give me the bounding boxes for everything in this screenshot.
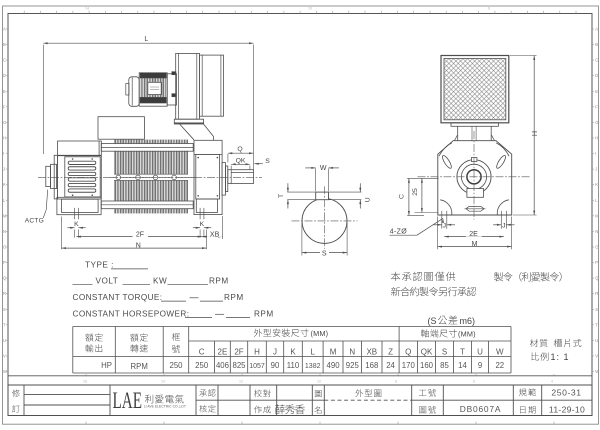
- svg-text:RPM: RPM: [131, 362, 148, 371]
- svg-text:CONSTANT TORQUE:: CONSTANT TORQUE:: [73, 293, 163, 302]
- svg-text:H: H: [595, 136, 598, 141]
- svg-text:N: N: [595, 229, 598, 234]
- svg-text:P: P: [3, 260, 6, 265]
- svg-text:R: R: [595, 291, 598, 296]
- svg-text:QK: QK: [236, 157, 246, 164]
- svg-text:J: J: [273, 348, 277, 357]
- svg-text:Z: Z: [388, 348, 393, 357]
- svg-text:11-29-10: 11-29-10: [549, 405, 585, 415]
- svg-text:V: V: [3, 354, 6, 359]
- svg-text:KW: KW: [153, 277, 167, 286]
- svg-text:925: 925: [346, 361, 360, 370]
- svg-text:90: 90: [271, 361, 280, 370]
- svg-text:LAE: LAE: [113, 388, 143, 413]
- svg-text:M: M: [595, 213, 599, 218]
- svg-text:S: S: [3, 307, 6, 312]
- svg-text:C: C: [199, 348, 205, 357]
- svg-text:B: B: [3, 42, 6, 47]
- svg-text:D: D: [595, 73, 598, 78]
- svg-text:T: T: [278, 194, 285, 198]
- svg-text:W: W: [320, 165, 327, 172]
- svg-text:10: 10: [308, 7, 312, 11]
- svg-text:16: 16: [83, 380, 87, 384]
- svg-text:2E: 2E: [469, 231, 478, 238]
- svg-text:J: J: [443, 223, 446, 230]
- svg-text:T: T: [595, 322, 598, 327]
- svg-text:CONSTANT HORSEPOWER:: CONSTANT HORSEPOWER:: [73, 309, 190, 318]
- svg-text:V: V: [595, 354, 598, 359]
- svg-text:170: 170: [402, 361, 416, 370]
- svg-text:XB: XB: [210, 231, 220, 238]
- svg-text:S: S: [442, 348, 447, 357]
- svg-text:H: H: [3, 136, 6, 141]
- svg-text:LI AVE ELECTRIC CO.,LDT: LI AVE ELECTRIC CO.,LDT: [144, 405, 186, 409]
- svg-text:490: 490: [327, 361, 341, 370]
- svg-text:F: F: [3, 104, 6, 109]
- svg-text:2E: 2E: [218, 348, 228, 357]
- svg-text:I: I: [595, 151, 596, 156]
- svg-text:(MM): (MM): [458, 330, 476, 339]
- svg-text:J: J: [502, 223, 505, 230]
- svg-text:K: K: [3, 182, 6, 187]
- svg-text:12: 12: [239, 380, 243, 384]
- svg-text:L: L: [144, 36, 148, 43]
- svg-text:25: 25: [412, 188, 419, 196]
- svg-text:T: T: [460, 348, 465, 357]
- svg-text:160: 160: [420, 361, 434, 370]
- svg-text:825: 825: [232, 361, 246, 370]
- svg-text:K: K: [74, 221, 79, 228]
- svg-text:6: 6: [488, 7, 490, 11]
- svg-text:U: U: [477, 348, 483, 357]
- svg-text:J: J: [3, 167, 5, 172]
- svg-text:U: U: [595, 338, 598, 343]
- svg-text:10: 10: [317, 380, 321, 384]
- svg-text:T: T: [3, 322, 6, 327]
- svg-text:1057: 1057: [249, 363, 265, 370]
- svg-text:S: S: [265, 158, 270, 165]
- svg-text:RPM: RPM: [209, 277, 229, 286]
- svg-text:G: G: [3, 120, 6, 125]
- svg-text:B: B: [595, 42, 598, 47]
- svg-text:R: R: [3, 291, 6, 296]
- svg-text:Q: Q: [237, 146, 242, 153]
- svg-text:QK: QK: [421, 348, 433, 357]
- svg-text:(S: (S: [428, 316, 437, 326]
- svg-text:E: E: [3, 89, 6, 94]
- svg-text:HP: HP: [101, 361, 112, 370]
- svg-text:D: D: [3, 73, 6, 78]
- svg-text:K: K: [595, 182, 598, 187]
- svg-text:W: W: [496, 348, 504, 357]
- svg-text:C: C: [595, 58, 598, 63]
- svg-text:ACTG: ACTG: [25, 217, 44, 224]
- svg-text:M: M: [330, 348, 337, 357]
- svg-text:U: U: [364, 197, 371, 202]
- svg-text:m6): m6): [460, 316, 476, 326]
- svg-text:14: 14: [85, 7, 89, 11]
- svg-text:(MM): (MM): [311, 329, 329, 338]
- svg-text:VOLT: VOLT: [96, 277, 119, 286]
- svg-text:RPM: RPM: [254, 309, 274, 318]
- svg-text:F: F: [595, 104, 598, 109]
- svg-text:Q: Q: [405, 348, 411, 357]
- svg-text:2F: 2F: [234, 348, 243, 357]
- svg-text:A: A: [3, 27, 6, 32]
- svg-text:E: E: [595, 89, 598, 94]
- svg-text:K: K: [200, 221, 205, 228]
- svg-text:K: K: [290, 348, 296, 357]
- svg-text:6: 6: [473, 380, 475, 384]
- svg-text:14: 14: [458, 361, 467, 370]
- svg-text:1382: 1382: [305, 363, 321, 370]
- svg-text:N: N: [3, 229, 6, 234]
- svg-text:A: A: [595, 27, 598, 32]
- svg-text:250: 250: [195, 361, 209, 370]
- svg-text:J: J: [595, 167, 597, 172]
- svg-text:110: 110: [287, 361, 300, 370]
- svg-text:4-ZØ: 4-ZØ: [390, 229, 407, 236]
- svg-text:1: 1: 1: 1: [551, 352, 570, 362]
- svg-text:P: P: [595, 260, 598, 265]
- svg-text:250-31: 250-31: [551, 388, 581, 398]
- svg-text:L: L: [310, 348, 315, 357]
- svg-text:W: W: [595, 369, 599, 374]
- svg-text:168: 168: [365, 361, 378, 370]
- svg-text:M: M: [472, 241, 478, 248]
- svg-text:2F: 2F: [136, 231, 144, 238]
- svg-text:XB: XB: [366, 348, 377, 357]
- svg-text:S: S: [322, 251, 327, 258]
- svg-text:406: 406: [216, 361, 229, 370]
- svg-text:G: G: [595, 120, 598, 125]
- svg-text:250: 250: [169, 361, 183, 370]
- svg-text:H: H: [530, 131, 539, 136]
- svg-text:24: 24: [386, 361, 395, 370]
- svg-text:C: C: [398, 194, 405, 199]
- svg-text:22: 22: [495, 361, 504, 370]
- svg-text:U: U: [3, 338, 6, 343]
- svg-text:14: 14: [161, 380, 165, 384]
- svg-text:9: 9: [478, 361, 482, 370]
- svg-text:C: C: [3, 58, 6, 63]
- svg-text:DB0607A: DB0607A: [460, 404, 501, 414]
- svg-text:TYPE :: TYPE :: [85, 261, 114, 270]
- svg-text:8: 8: [395, 380, 397, 384]
- svg-text:I: I: [3, 151, 4, 156]
- svg-text:S: S: [595, 307, 598, 312]
- svg-text:N: N: [136, 242, 141, 249]
- svg-text:RPM: RPM: [224, 293, 244, 302]
- svg-text:4: 4: [551, 380, 553, 384]
- svg-text:85: 85: [440, 361, 449, 370]
- svg-text:N: N: [349, 348, 355, 357]
- svg-text:H: H: [254, 348, 260, 357]
